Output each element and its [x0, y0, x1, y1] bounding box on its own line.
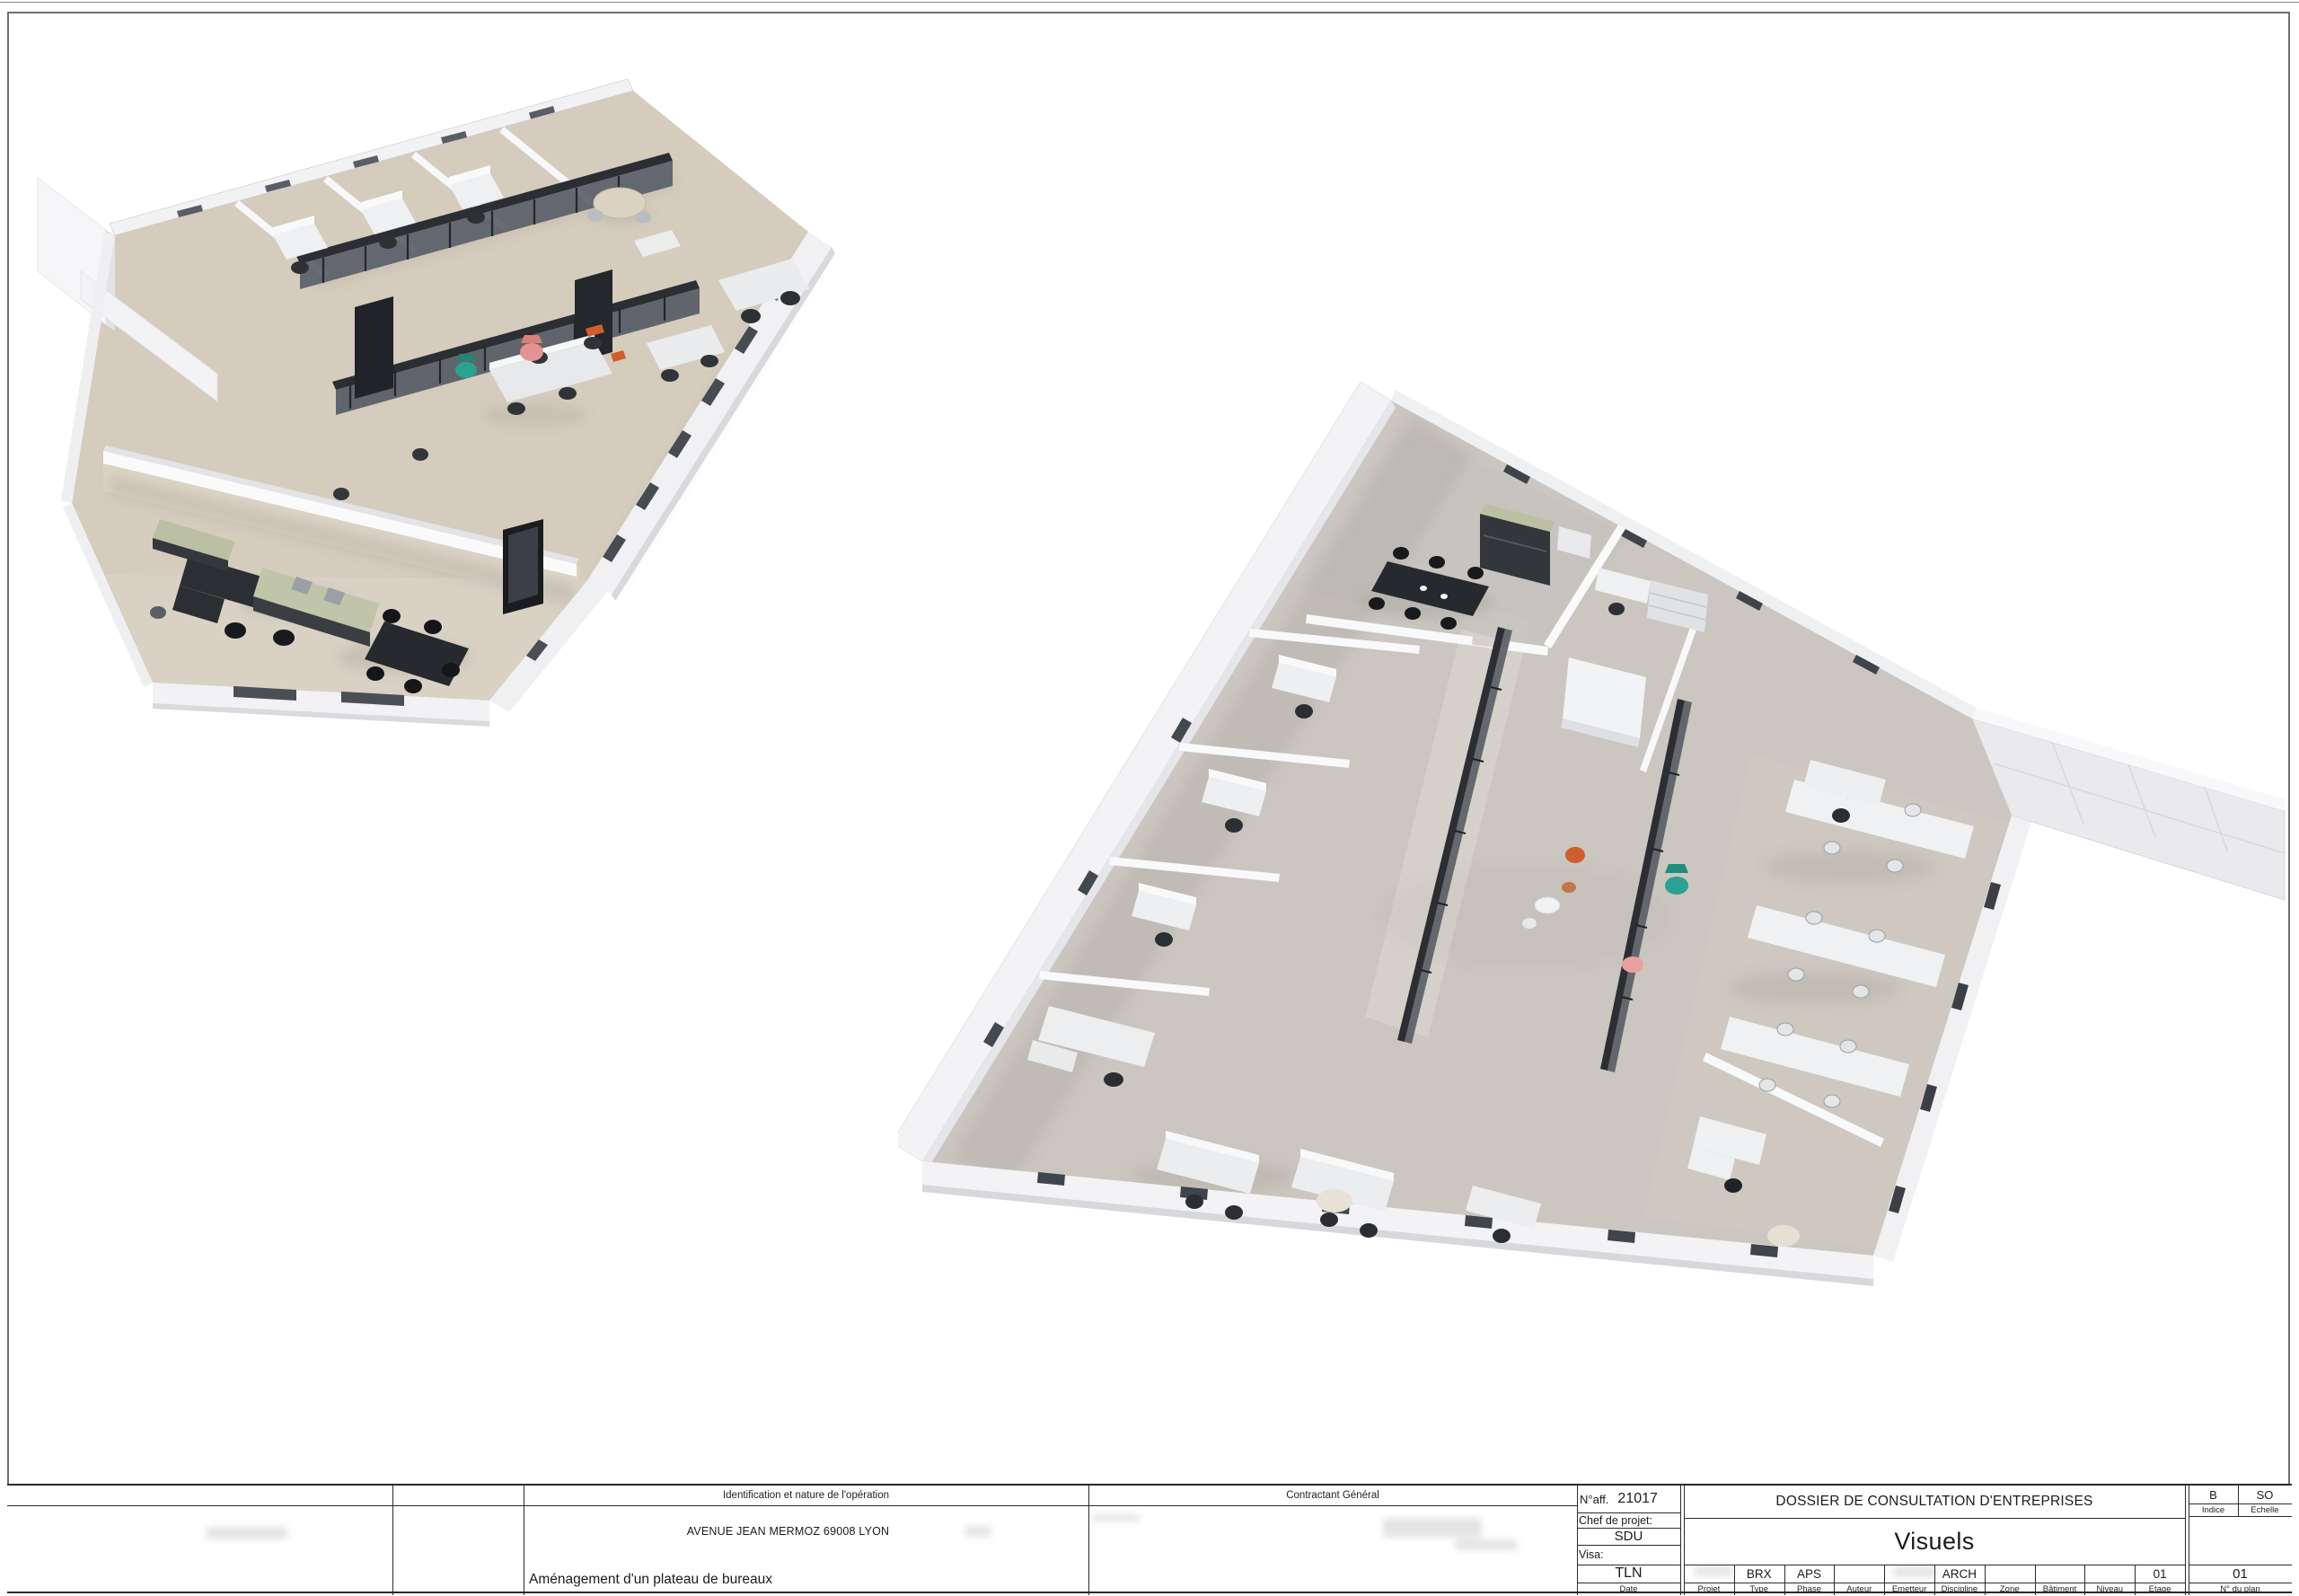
meta-value-discipline: ARCH — [1934, 1565, 1985, 1583]
meta-label-batiment: Bâtiment — [2035, 1583, 2085, 1595]
redacted-contractant-text — [1455, 1539, 1518, 1550]
meta-label-auteur: Auteur — [1834, 1583, 1884, 1595]
redacted-contractant-logo — [1383, 1518, 1482, 1538]
redacted-projet-value — [1694, 1566, 1733, 1576]
meta-value-auteur — [1834, 1565, 1884, 1583]
side-wing — [1972, 708, 2285, 900]
redacted-text-small — [1091, 1514, 1141, 1521]
meta-label-emetteur: Emetteur — [1884, 1583, 1934, 1595]
identification-header: Identification et nature de l'opération — [524, 1486, 1088, 1505]
dark-door-1 — [355, 296, 393, 399]
logo-cell-2 — [392, 1486, 524, 1595]
floor-plan-render-1 — [27, 27, 835, 736]
meta-label-phase: Phase — [1784, 1583, 1835, 1595]
redacted-emetteur-value — [1893, 1566, 1936, 1577]
echelle-label: Echelle — [2238, 1503, 2292, 1516]
logo-cell-1 — [7, 1486, 392, 1595]
meta-value-type: BRX — [1734, 1565, 1784, 1583]
indice-value: B — [2189, 1486, 2238, 1503]
visa-value: TLN — [1577, 1565, 1680, 1583]
date-label: Date — [1577, 1583, 1680, 1595]
indice-label: Indice — [2189, 1503, 2238, 1516]
meta-label-projet: Projet — [1684, 1583, 1734, 1595]
redacted-street-number — [965, 1526, 991, 1537]
plan-number-label: N° du plan — [2189, 1583, 2292, 1595]
divider — [1680, 1486, 1681, 1595]
naff-label: N°aff. — [1580, 1493, 1608, 1506]
round-pouf-right — [1767, 1225, 1800, 1247]
meta-value-niveau — [2084, 1565, 2135, 1583]
title-block: Identification et nature de l'opération … — [7, 1484, 2292, 1593]
dossier-cell: DOSSIER DE CONSULTATION D'ENTREPRISES Vi… — [1684, 1486, 2185, 1595]
meta-label-discipline: Discipline — [1934, 1583, 1985, 1595]
meta-value-phase: APS — [1784, 1565, 1835, 1583]
echelle-value: SO — [2238, 1486, 2292, 1503]
operation-name: Aménagement d'un plateau de bureaux — [529, 1572, 772, 1588]
dossier-subtitle: Visuels — [1684, 1518, 2185, 1565]
indice-echelle-cell: B SO Indice Echelle 01 N° du plan — [2189, 1486, 2292, 1595]
meta-label-zone: Zone — [1985, 1583, 2035, 1595]
meta-value-batiment — [2035, 1565, 2085, 1583]
contractant-header: Contractant Général — [1088, 1486, 1577, 1505]
meta-value-zone — [1985, 1565, 2035, 1583]
chef-projet-label: Chef de projet: — [1577, 1512, 1682, 1528]
dossier-title: DOSSIER DE CONSULTATION D'ENTREPRISES — [1684, 1486, 2185, 1518]
floor-plan-render-2 — [898, 377, 2299, 1293]
meta-value-etage: 01 — [2135, 1565, 2185, 1583]
chef-projet-value: SDU — [1577, 1528, 1680, 1545]
plan-number-value: 01 — [2189, 1565, 2292, 1583]
page-top-rule — [0, 2, 2299, 3]
project-info-column: N°aff. 21017 Chef de projet: SDU Visa: T… — [1577, 1486, 1680, 1595]
divider — [2185, 1486, 2186, 1595]
round-pouf-left — [1317, 1189, 1352, 1212]
meta-label-type: Type — [1734, 1583, 1784, 1595]
visa-label: Visa: — [1577, 1545, 1682, 1565]
meta-label-niveau: Niveau — [2084, 1583, 2135, 1595]
identification-cell: Identification et nature de l'opération … — [524, 1486, 1088, 1595]
redacted-logo-1 — [207, 1527, 287, 1539]
naff-value: 21017 — [1617, 1491, 1658, 1507]
meta-label-etage: Etage — [2135, 1583, 2185, 1595]
